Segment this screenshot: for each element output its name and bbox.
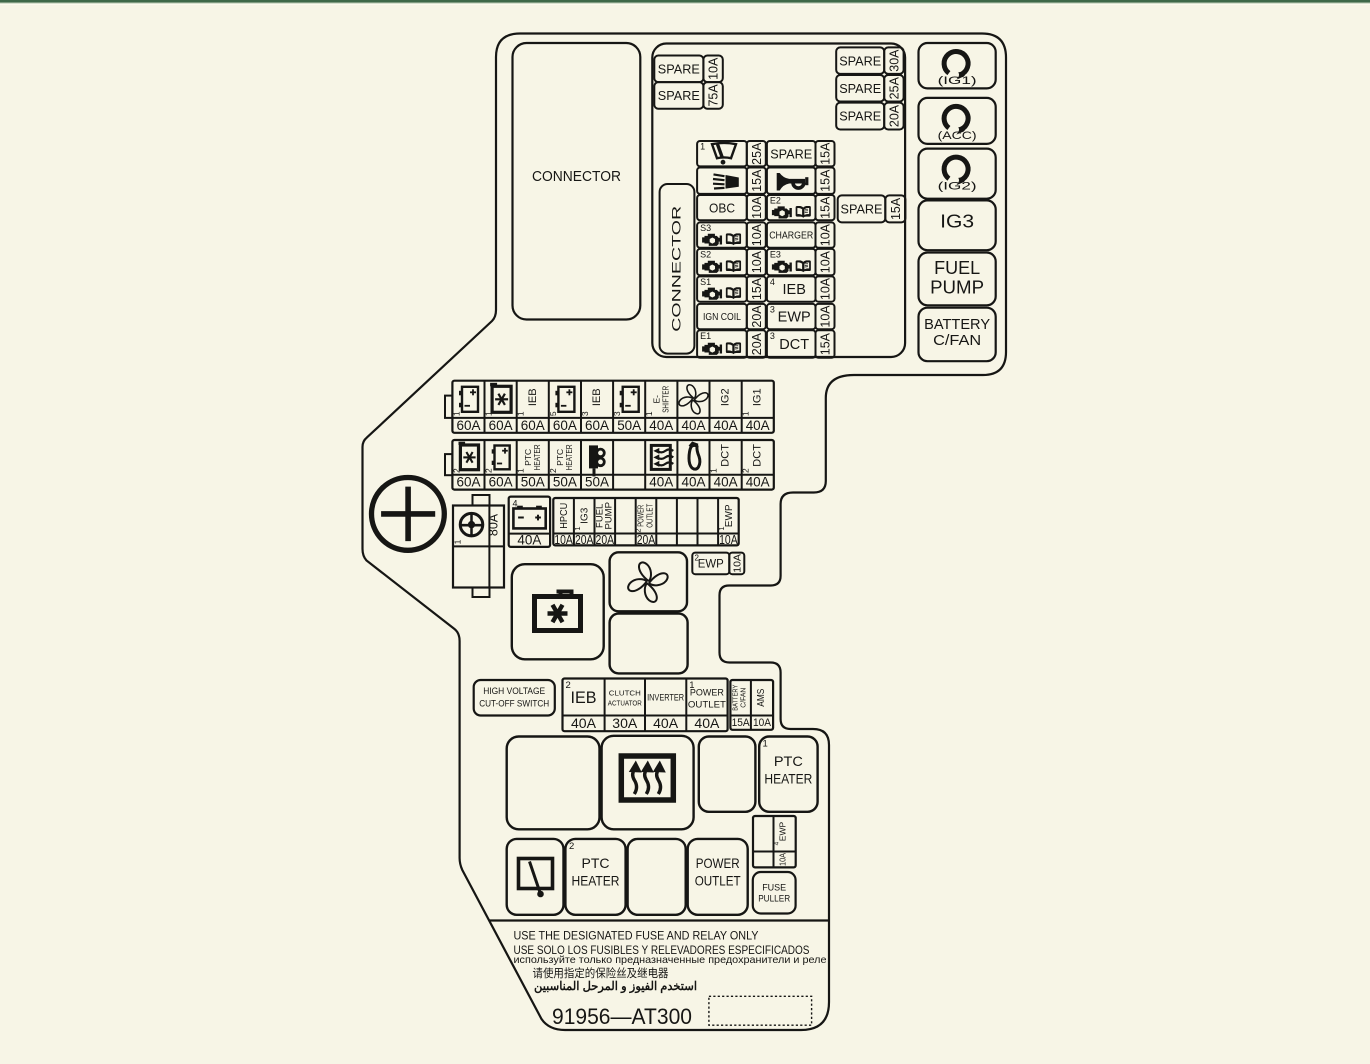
svg-text:50A: 50A bbox=[553, 475, 577, 490]
svg-text:1: 1 bbox=[484, 411, 494, 416]
svg-text:2: 2 bbox=[451, 468, 461, 473]
svg-text:10A: 10A bbox=[819, 223, 833, 246]
svg-text:PULLER: PULLER bbox=[758, 894, 790, 905]
svg-text:2: 2 bbox=[634, 528, 643, 532]
svg-text:20A: 20A bbox=[887, 104, 901, 127]
svg-text:SPARE: SPARE bbox=[658, 62, 700, 77]
svg-text:S1: S1 bbox=[700, 277, 711, 287]
svg-text:FUEL: FUEL bbox=[934, 258, 980, 278]
svg-text:1: 1 bbox=[717, 526, 726, 530]
svg-text:OBC: OBC bbox=[709, 200, 735, 215]
svg-text:40A: 40A bbox=[746, 475, 770, 490]
svg-text:请使用指定的保险丝及继电器: 请使用指定的保险丝及继电器 bbox=[533, 966, 669, 980]
svg-text:OUTLET: OUTLET bbox=[688, 700, 726, 711]
svg-text:IG3: IG3 bbox=[940, 211, 974, 231]
svg-text:C/FAN: C/FAN bbox=[933, 333, 981, 349]
svg-text:10A: 10A bbox=[750, 223, 764, 246]
svg-text:15A: 15A bbox=[819, 332, 833, 355]
svg-text:60A: 60A bbox=[489, 418, 513, 433]
svg-text:1: 1 bbox=[763, 739, 768, 750]
svg-text:POWER: POWER bbox=[696, 855, 740, 871]
svg-text:2: 2 bbox=[566, 680, 571, 691]
svg-text:EWP: EWP bbox=[724, 504, 735, 527]
svg-text:10A: 10A bbox=[732, 554, 744, 573]
svg-text:EWP: EWP bbox=[778, 821, 788, 841]
svg-text:80A: 80A bbox=[486, 513, 500, 536]
svg-text:C/FAN: C/FAN bbox=[741, 688, 748, 708]
svg-text:استخدم الفيوز و المرحل المناسب: استخدم الفيوز و المرحل المناسبين bbox=[534, 979, 697, 994]
svg-text:DCT: DCT bbox=[720, 444, 732, 467]
svg-text:используйте только предназначе: используйте только предназначенные предо… bbox=[514, 954, 827, 966]
svg-text:60A: 60A bbox=[457, 418, 481, 433]
svg-text:SPARE: SPARE bbox=[658, 88, 700, 103]
svg-text:CONNECTOR: CONNECTOR bbox=[670, 206, 684, 332]
svg-text:OUTLET: OUTLET bbox=[646, 504, 655, 528]
svg-text:30A: 30A bbox=[887, 49, 901, 72]
svg-text:10A: 10A bbox=[819, 277, 833, 300]
svg-text:AMS: AMS bbox=[756, 688, 767, 706]
svg-text:IG1: IG1 bbox=[752, 388, 764, 406]
svg-text:1: 1 bbox=[741, 411, 751, 416]
svg-text:75A: 75A bbox=[707, 84, 721, 107]
svg-text:10A: 10A bbox=[707, 57, 721, 80]
svg-text:BATTERY: BATTERY bbox=[733, 684, 740, 710]
svg-text:50A: 50A bbox=[521, 475, 545, 490]
svg-text:DCT: DCT bbox=[779, 337, 809, 353]
svg-text:PUMP: PUMP bbox=[930, 278, 984, 298]
svg-text:15A: 15A bbox=[889, 197, 903, 220]
svg-text:IG3: IG3 bbox=[580, 507, 591, 524]
svg-text:60A: 60A bbox=[553, 418, 577, 433]
svg-text:10A: 10A bbox=[750, 250, 764, 273]
svg-text:OUTLET: OUTLET bbox=[695, 873, 741, 889]
svg-text:20A: 20A bbox=[750, 305, 764, 328]
svg-text:SPARE: SPARE bbox=[839, 81, 881, 96]
svg-text:10A: 10A bbox=[819, 250, 833, 273]
svg-text:PTC: PTC bbox=[582, 855, 610, 871]
svg-text:POWER: POWER bbox=[637, 505, 646, 527]
svg-text:30A: 30A bbox=[612, 716, 637, 731]
svg-text:IG2: IG2 bbox=[720, 388, 732, 406]
svg-text:HEATER: HEATER bbox=[764, 771, 812, 787]
svg-text:SHIFTER: SHIFTER bbox=[660, 386, 670, 413]
svg-text:15A: 15A bbox=[819, 169, 833, 192]
svg-text:50A: 50A bbox=[617, 418, 641, 433]
svg-text:SPARE: SPARE bbox=[770, 146, 812, 161]
svg-text:3: 3 bbox=[580, 411, 590, 416]
svg-text:E3: E3 bbox=[770, 249, 781, 259]
svg-text:5: 5 bbox=[548, 411, 558, 416]
svg-text:40A: 40A bbox=[682, 475, 706, 490]
svg-text:20A: 20A bbox=[596, 533, 615, 547]
svg-text:25A: 25A bbox=[887, 76, 901, 99]
svg-text:(ACC): (ACC) bbox=[938, 130, 977, 142]
svg-text:CLUTCH: CLUTCH bbox=[609, 689, 641, 698]
svg-text:(IG1): (IG1) bbox=[938, 75, 977, 87]
svg-text:1: 1 bbox=[700, 142, 705, 152]
svg-text:4: 4 bbox=[774, 841, 781, 845]
svg-text:1: 1 bbox=[451, 411, 461, 416]
svg-text:4: 4 bbox=[770, 277, 775, 287]
svg-text:10A: 10A bbox=[819, 305, 833, 328]
svg-text:40A: 40A bbox=[714, 475, 738, 490]
svg-text:1: 1 bbox=[516, 411, 526, 416]
svg-text:2: 2 bbox=[569, 841, 574, 852]
svg-text:1: 1 bbox=[516, 468, 526, 473]
svg-text:40A: 40A bbox=[649, 475, 673, 490]
svg-text:HPCU: HPCU bbox=[559, 503, 570, 529]
svg-text:IGN COIL: IGN COIL bbox=[703, 312, 741, 323]
svg-text:IEB: IEB bbox=[591, 388, 603, 406]
svg-text:1: 1 bbox=[453, 539, 463, 544]
svg-text:CHARGER: CHARGER bbox=[769, 231, 813, 242]
svg-text:40A: 40A bbox=[649, 418, 673, 433]
svg-text:10A: 10A bbox=[719, 533, 738, 547]
svg-text:40A: 40A bbox=[653, 716, 678, 731]
svg-text:1: 1 bbox=[644, 411, 654, 416]
svg-text:1: 1 bbox=[689, 680, 694, 691]
svg-text:HEATER: HEATER bbox=[532, 444, 542, 470]
svg-text:DCT: DCT bbox=[752, 444, 764, 467]
svg-text:ACTUATOR: ACTUATOR bbox=[608, 699, 642, 708]
svg-text:91956—AT300: 91956—AT300 bbox=[552, 1004, 692, 1029]
svg-text:50A: 50A bbox=[585, 475, 609, 490]
svg-text:15A: 15A bbox=[819, 196, 833, 219]
svg-text:40A: 40A bbox=[746, 418, 770, 433]
svg-text:20A: 20A bbox=[575, 533, 594, 547]
svg-text:SPARE: SPARE bbox=[839, 53, 881, 68]
svg-text:4: 4 bbox=[513, 499, 518, 509]
svg-text:E1: E1 bbox=[700, 331, 711, 341]
svg-text:SPARE: SPARE bbox=[839, 109, 881, 124]
svg-text:10A: 10A bbox=[778, 853, 788, 866]
svg-text:HIGH VOLTAGE: HIGH VOLTAGE bbox=[483, 686, 545, 697]
svg-text:EWP: EWP bbox=[698, 559, 724, 571]
svg-text:1: 1 bbox=[709, 468, 719, 473]
svg-text:15A: 15A bbox=[732, 717, 751, 729]
svg-text:IEB: IEB bbox=[527, 388, 539, 406]
svg-text:60A: 60A bbox=[585, 418, 609, 433]
svg-text:15A: 15A bbox=[750, 277, 764, 300]
svg-text:40A: 40A bbox=[571, 716, 596, 731]
svg-text:CUT-OFF SWITCH: CUT-OFF SWITCH bbox=[479, 699, 549, 710]
svg-text:1: 1 bbox=[573, 526, 582, 530]
svg-text:FUSE: FUSE bbox=[762, 883, 786, 894]
svg-text:40A: 40A bbox=[714, 418, 738, 433]
svg-text:60A: 60A bbox=[521, 418, 545, 433]
svg-text:3: 3 bbox=[770, 304, 775, 314]
svg-text:40A: 40A bbox=[694, 716, 719, 731]
svg-text:2: 2 bbox=[695, 554, 700, 563]
svg-text:CONNECTOR: CONNECTOR bbox=[532, 168, 621, 185]
svg-text:IEB: IEB bbox=[783, 282, 806, 298]
svg-text:40A: 40A bbox=[517, 533, 541, 548]
svg-text:3: 3 bbox=[770, 331, 775, 341]
svg-text:(IG2): (IG2) bbox=[938, 181, 977, 193]
svg-text:IEB: IEB bbox=[571, 689, 597, 707]
svg-text:E2: E2 bbox=[770, 196, 781, 206]
svg-text:60A: 60A bbox=[489, 475, 513, 490]
svg-text:3: 3 bbox=[612, 411, 622, 416]
svg-text:USE THE DESIGNATED FUSE AND RE: USE THE DESIGNATED FUSE AND RELAY ONLY bbox=[514, 931, 759, 943]
svg-text:SPARE: SPARE bbox=[841, 202, 883, 217]
svg-text:2: 2 bbox=[741, 468, 751, 473]
svg-text:10A: 10A bbox=[753, 717, 772, 729]
svg-text:HEATER: HEATER bbox=[564, 444, 574, 470]
svg-text:EWP: EWP bbox=[778, 310, 811, 326]
svg-text:15A: 15A bbox=[750, 169, 764, 192]
svg-text:25A: 25A bbox=[750, 142, 764, 165]
svg-text:BATTERY: BATTERY bbox=[924, 317, 990, 333]
svg-text:PTC: PTC bbox=[774, 753, 803, 769]
svg-text:INVERTER: INVERTER bbox=[647, 692, 684, 703]
svg-text:S3: S3 bbox=[700, 223, 711, 233]
svg-text:PUMP: PUMP bbox=[603, 502, 614, 529]
svg-text:POWER: POWER bbox=[690, 688, 724, 699]
svg-text:10A: 10A bbox=[750, 196, 764, 219]
svg-text:15A: 15A bbox=[819, 142, 833, 165]
svg-text:40A: 40A bbox=[682, 418, 706, 433]
svg-text:20A: 20A bbox=[750, 332, 764, 355]
svg-text:20A: 20A bbox=[637, 533, 656, 547]
svg-text:HEATER: HEATER bbox=[572, 873, 620, 889]
svg-text:60A: 60A bbox=[457, 475, 481, 490]
svg-text:10A: 10A bbox=[554, 533, 573, 547]
svg-text:2: 2 bbox=[548, 468, 558, 473]
svg-text:S2: S2 bbox=[700, 249, 711, 259]
svg-text:2: 2 bbox=[484, 468, 494, 473]
